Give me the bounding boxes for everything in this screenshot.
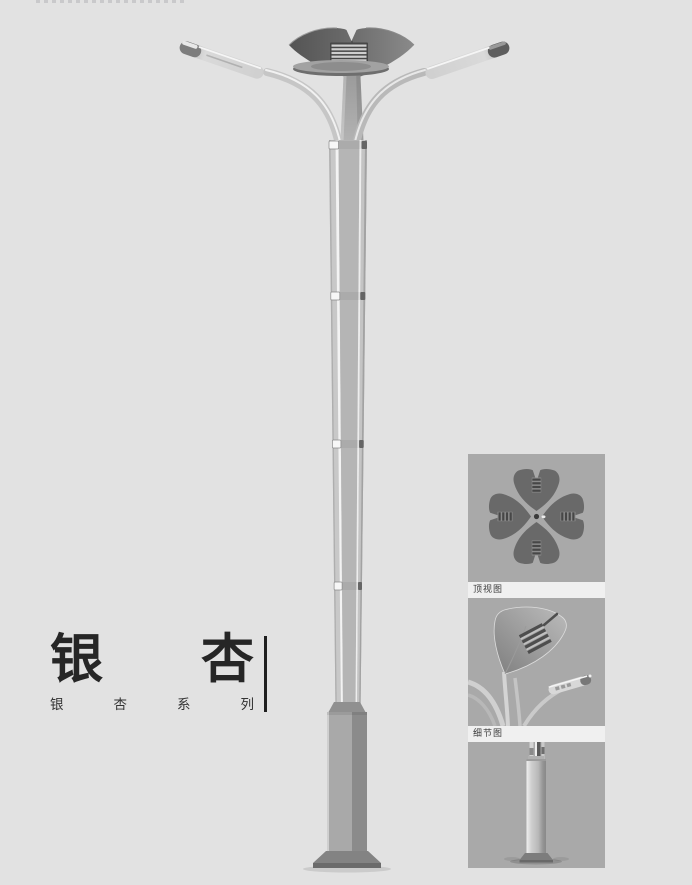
lamp-head-right: [424, 40, 511, 81]
lamp-head-left: [178, 40, 265, 81]
thumbnail-label-detail-view: 细节图: [468, 726, 605, 742]
subtitle-char: 银: [50, 693, 64, 713]
lamp-arm-left: [266, 70, 342, 150]
base-view-image: [468, 742, 605, 868]
product-title: 银 杏: [50, 630, 254, 690]
thumbnail-top-view: 顶视图: [468, 454, 605, 598]
title-divider-line: [264, 636, 267, 712]
catalog-page: 银 杏 银 杏 系 列: [0, 0, 692, 885]
thumbnail-gallery: 顶视图: [468, 454, 605, 868]
product-title-block: 银 杏 银 杏 系 列: [50, 630, 254, 713]
subtitle-char: 系: [177, 693, 191, 713]
product-series-subtitle: 银 杏 系 列: [50, 693, 254, 713]
thumbnail-base-view: [468, 742, 605, 868]
top-view-image: [468, 454, 605, 582]
lamp-pole: [329, 140, 367, 712]
base-column: [327, 702, 367, 853]
title-char: 杏: [201, 630, 254, 690]
thumbnail-label-top-view: 顶视图: [468, 582, 605, 598]
detail-view-image: [468, 598, 605, 726]
lamp-arm-right: [354, 70, 426, 150]
base-plate: [303, 851, 391, 873]
title-char: 银: [50, 630, 103, 690]
leaf-grille: [330, 43, 368, 63]
subtitle-char: 杏: [114, 693, 128, 713]
subtitle-char: 列: [241, 693, 255, 713]
thumbnail-detail-view: 细节图: [468, 598, 605, 742]
collar-disc: [293, 60, 389, 76]
